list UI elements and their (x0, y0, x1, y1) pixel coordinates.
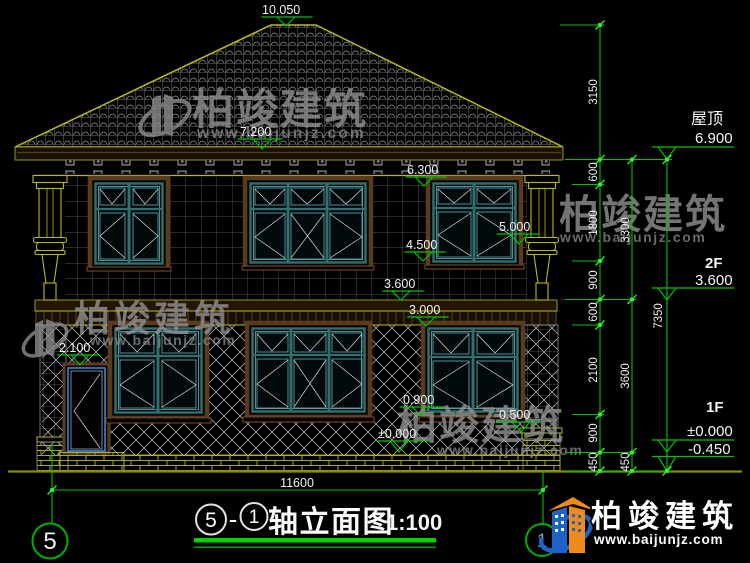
level-floor-2f: 3.600 (384, 277, 415, 291)
level-window2f-sill: 4.500 (406, 238, 437, 252)
drawing-scale: 1:100 (386, 510, 442, 535)
dim-600a: 600 (588, 162, 600, 181)
cad-elevation-canvas: 柏竣建筑 www.baijunjz.com 柏竣建筑 www.baijunjz.… (0, 0, 750, 563)
level-door-top: 2.100 (59, 341, 90, 355)
brand-logo: 柏竣建筑 www.baijunjz.com (536, 497, 739, 558)
dim-3300: 3300 (620, 217, 632, 243)
title-axis-end: 1 (249, 507, 260, 528)
eave-brackets (48, 160, 550, 174)
dim-3600: 3600 (620, 363, 632, 389)
brand-logo-url: www.baijunjz.com (593, 532, 723, 547)
level-ridge: 10.050 (262, 3, 300, 17)
watermark-right: 柏竣建筑 www.baijunjz.com (559, 193, 727, 245)
brand-logo-name: 柏竣建筑 (591, 499, 739, 534)
level-column-band: 5.000 (499, 220, 530, 234)
dim-450a: 450 (588, 452, 600, 471)
eave-fascia (15, 147, 563, 160)
level-eave: 7.200 (240, 125, 271, 139)
floor2-value: 3.600 (695, 272, 733, 289)
level-pier-cap: 0.500 (499, 408, 530, 422)
dim-2100: 2100 (588, 357, 600, 383)
axis-bubble-left: 5 (43, 528, 56, 555)
dim-900b: 900 (588, 423, 600, 442)
dim-1800: 1800 (588, 210, 600, 236)
dimension-chains: 3150 600 1800 900 600 2100 900 450 3300 … (560, 21, 672, 476)
left-pilaster (33, 176, 67, 301)
below-ground-value: -0.450 (688, 441, 731, 458)
right-level-symbols: 屋顶 6.900 2F 3.600 1F ±0.000 -0.450 (652, 110, 734, 471)
roof-level-label: 屋顶 (691, 110, 723, 128)
floor1-value: ±0.000 (687, 423, 733, 440)
drawing-title: 轴立面图 (268, 505, 394, 539)
entry-door (64, 364, 109, 453)
svg-text:www.baijunjz.com: www.baijunjz.com (89, 332, 236, 348)
title-separator: - (229, 504, 238, 534)
floor1-label: 1F (706, 399, 724, 416)
level-window1f-top: 3.000 (409, 303, 440, 317)
right-pilaster (525, 176, 559, 301)
title-underline-thick (194, 538, 436, 543)
roof-level-value: 6.900 (695, 130, 733, 147)
title-block: 5 - 1 轴立面图 1:100 (194, 503, 442, 548)
title-axis-start: 5 (205, 509, 217, 532)
title-underline-thin (194, 547, 436, 549)
svg-text:www.baijunjz.com: www.baijunjz.com (559, 229, 706, 245)
dim-600b: 600 (588, 302, 600, 321)
svg-text:www.baijunjz.com: www.baijunjz.com (436, 442, 583, 458)
level-window2f-top: 6.300 (407, 163, 438, 177)
dim-11600: 11600 (280, 476, 314, 490)
elevation-drawing: 柏竣建筑 www.baijunjz.com 柏竣建筑 www.baijunjz.… (0, 0, 750, 563)
window-2f-center (242, 178, 374, 270)
dim-7350: 7350 (653, 303, 665, 329)
level-ground-floor: ±0.000 (378, 427, 416, 441)
floor2-label: 2F (705, 255, 723, 272)
dim-3150: 3150 (588, 79, 600, 105)
dim-900a: 900 (588, 270, 600, 289)
level-window1f-sill: 0.900 (403, 393, 434, 407)
dim-450b: 450 (620, 452, 632, 471)
window-1f-center (243, 323, 374, 422)
window-2f-left (87, 178, 171, 271)
brand-logo-icon (536, 497, 597, 558)
